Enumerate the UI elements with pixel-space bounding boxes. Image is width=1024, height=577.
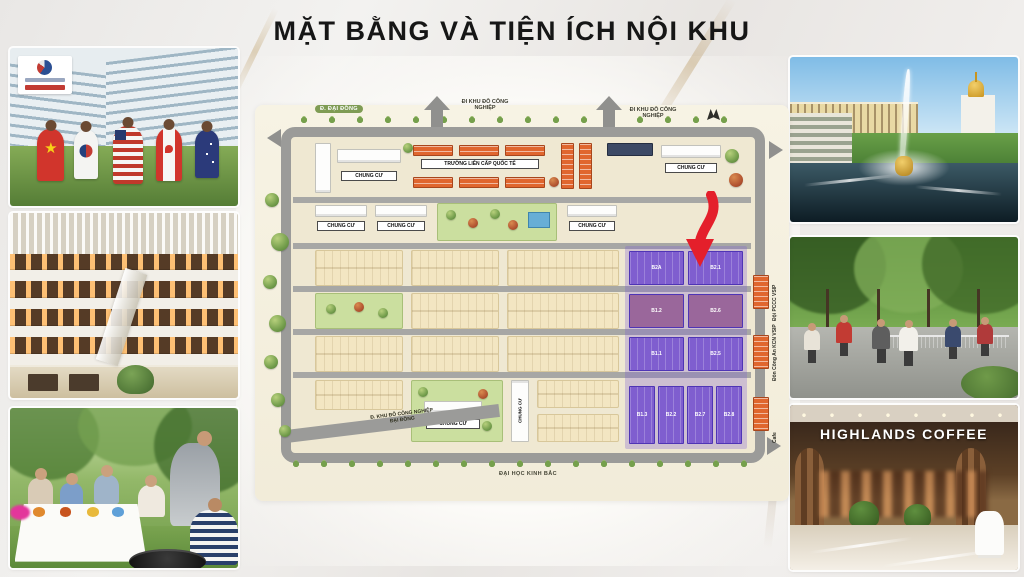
mall-ceiling — [10, 213, 238, 254]
person-torso — [899, 327, 917, 351]
mall-kiosk — [69, 374, 99, 391]
road-label-exit-right: ĐI KHU ĐÔ CÔNG NGHIỆP — [621, 107, 685, 120]
block-b1-2: B1.2 — [629, 294, 684, 328]
picnic-person — [138, 485, 165, 517]
school-tower — [561, 143, 574, 189]
shophouse-block — [411, 293, 499, 329]
gold-dome — [968, 80, 984, 97]
tree — [725, 149, 739, 163]
korea-flag-figure — [74, 130, 98, 179]
park-player — [977, 324, 993, 356]
tree-trunk — [977, 289, 980, 328]
person-legs — [877, 349, 886, 363]
swimming-pool — [528, 212, 550, 228]
school-label: TRƯỜNG LIÊN CẤP QUỐC TẾ — [421, 159, 539, 169]
master-plan-map: Đ. ĐẠI ĐỒNG ĐI KHU ĐÔ CÔNG NGHIỆP ĐI KHU… — [255, 93, 789, 507]
road-exit-arrow-up — [431, 109, 443, 129]
location-arrow-shaft — [700, 195, 714, 241]
person-torso — [945, 326, 961, 347]
apartment-label: CHUNG CƯ — [341, 171, 397, 181]
tree — [490, 209, 500, 219]
pink-flower — [10, 505, 30, 520]
park-player — [899, 327, 917, 366]
shophouse-block — [507, 336, 619, 372]
block-b2-7: B2.7 — [687, 386, 713, 444]
tree — [354, 302, 364, 312]
shophouse-block — [507, 293, 619, 329]
gold-statue — [895, 156, 913, 176]
picnic-person — [94, 475, 119, 504]
apartment-slab — [567, 205, 617, 217]
person-head — [35, 468, 47, 480]
shophouse-block — [537, 414, 619, 442]
school-tower — [579, 143, 592, 189]
fountain-cascade — [790, 113, 852, 163]
chapel-spire — [975, 72, 977, 82]
white-chair — [975, 511, 1005, 556]
apartment-label: CHUNG CƯ — [317, 221, 365, 231]
block-b2-8: B2.8 — [716, 386, 742, 444]
picnic-person — [28, 478, 53, 507]
tree — [482, 421, 492, 431]
tree — [326, 304, 336, 314]
apartment-label: CHUNG CƯ — [569, 221, 615, 231]
amenity-building — [753, 335, 769, 369]
tree — [418, 387, 428, 397]
person-head — [208, 498, 222, 512]
person-torso — [138, 485, 165, 517]
apartment-tower-vertical: CHUNG CƯ — [511, 380, 529, 442]
school-building — [459, 145, 499, 156]
university-road-label: ĐẠI HỌC KINH BẮC — [463, 471, 593, 477]
tree — [729, 173, 743, 187]
photo-international-school: ★ — [10, 48, 238, 206]
bottom-tree-row — [285, 457, 759, 471]
person-head — [981, 317, 989, 325]
road-label-dai-dong: Đ. ĐẠI ĐỒNG — [315, 105, 363, 113]
central-park — [437, 203, 557, 241]
maple-leaf — [165, 145, 173, 153]
person-legs — [981, 344, 989, 356]
mall-kiosk — [28, 374, 58, 391]
photo-family-bbq — [10, 408, 238, 568]
tree — [378, 308, 388, 318]
food-item — [60, 507, 72, 516]
cafe-ceiling — [790, 405, 1018, 422]
apartment-label: CHUNG CƯ — [377, 221, 425, 231]
person-legs — [949, 347, 957, 360]
shophouse-block — [411, 336, 499, 372]
amenity-building — [753, 275, 769, 309]
picnic-table — [15, 504, 147, 562]
tree-trunk — [826, 289, 829, 328]
amenity-label: Cafe — [772, 385, 778, 443]
apartment-dark-slab — [607, 143, 653, 156]
chapel-building — [961, 95, 995, 136]
apartment-slab — [337, 149, 401, 163]
school-logo-emblem — [37, 60, 52, 75]
apartment-tower — [315, 143, 331, 193]
road-exit-arrow-right — [769, 141, 783, 159]
tree — [549, 177, 559, 187]
person-torso — [872, 326, 890, 349]
photo-palace-fountain — [790, 57, 1018, 222]
tree — [265, 193, 279, 207]
person-legs — [808, 350, 816, 362]
person-head — [808, 323, 816, 331]
photo-highlands-coffee: HIGHLANDS COFFEE — [790, 405, 1018, 570]
food-item — [87, 507, 99, 516]
park-bush — [961, 366, 1018, 398]
apartment-slab — [315, 205, 367, 217]
taegeuk-symbol — [79, 144, 92, 157]
park-player — [836, 322, 852, 356]
park-player — [945, 326, 961, 360]
shophouse-block — [537, 380, 619, 408]
school-logo-badge — [18, 56, 72, 94]
bbq-grill — [129, 549, 207, 568]
person-head — [66, 473, 78, 485]
person-torso — [836, 322, 852, 343]
tree — [478, 389, 488, 399]
food-item — [33, 507, 45, 516]
block-b1-1: B1.1 — [629, 337, 684, 371]
photo-park-badminton — [790, 237, 1018, 398]
photo-shopping-mall — [10, 213, 238, 398]
person-head — [877, 319, 885, 327]
canada-flag-figure — [156, 128, 182, 181]
tree — [264, 355, 278, 369]
person-head — [145, 475, 157, 487]
person-head — [201, 121, 212, 132]
block-b2-5: B2.5 — [688, 337, 743, 371]
person-torso — [94, 475, 119, 504]
shophouse-block — [411, 250, 499, 286]
tree — [271, 233, 289, 251]
school-building — [459, 177, 499, 188]
person-head — [101, 465, 113, 477]
person-head — [122, 117, 133, 128]
food-item — [112, 507, 124, 516]
park-player — [804, 330, 820, 362]
park-player — [872, 326, 890, 363]
tree — [403, 143, 413, 153]
potted-plant — [849, 501, 879, 527]
australia-flag-figure — [195, 130, 219, 178]
tree — [468, 218, 478, 228]
person-head — [905, 320, 913, 328]
shophouse-block — [315, 336, 403, 372]
amenity-building — [753, 397, 769, 431]
apartment-slab — [375, 205, 427, 217]
person-head — [840, 315, 848, 323]
road-exit-arrow-left — [267, 129, 281, 147]
person-legs — [840, 343, 848, 356]
person-torso — [28, 478, 53, 507]
amenity-label: Đội PCCC VSIP — [772, 263, 778, 321]
school-logo-textline — [25, 78, 65, 82]
road-exit-arrow-up — [603, 109, 615, 129]
shophouse-block — [315, 250, 403, 286]
slide-canvas: MẶT BẰNG VÀ TIỆN ÍCH NỘI KHU ★ — [0, 0, 1024, 577]
tree — [269, 315, 286, 332]
apartment-slab — [661, 145, 721, 158]
page-title: MẶT BẰNG VÀ TIỆN ÍCH NỘI KHU — [0, 16, 1024, 47]
block-b2-2: B2.2 — [658, 386, 684, 444]
usa-flag-figure — [113, 126, 143, 184]
block-b2-6: B2.6 — [688, 294, 743, 328]
location-arrow-head — [686, 239, 714, 267]
tree — [508, 220, 518, 230]
road-label-exit-left: ĐI KHU ĐÔ CÔNG NGHIỆP — [453, 99, 517, 112]
tree — [279, 425, 291, 437]
school-building — [413, 177, 453, 188]
person-torso — [977, 324, 993, 344]
school-building — [413, 145, 453, 156]
mall-atrium-tree — [117, 365, 153, 395]
tree — [263, 275, 277, 289]
location-arrow — [673, 191, 725, 277]
flag-canton — [115, 130, 126, 140]
shophouse-block — [315, 380, 403, 410]
vietnam-flag-figure: ★ — [37, 129, 64, 181]
person-head — [45, 120, 56, 131]
tree — [271, 393, 285, 407]
person-head — [949, 319, 957, 327]
tree-trunk — [927, 289, 930, 328]
school-building — [505, 145, 545, 156]
person-head — [163, 119, 174, 130]
person-head — [80, 121, 91, 132]
amenity-label: Đồn Công An KCN VSIP — [772, 323, 778, 381]
shophouse-block — [507, 250, 619, 286]
apartment-label: CHUNG CƯ — [665, 163, 717, 173]
potted-plant — [904, 504, 931, 527]
highlands-coffee-sign: HIGHLANDS COFFEE — [790, 426, 1018, 442]
person-torso — [804, 330, 820, 350]
school-logo-redband — [25, 85, 65, 90]
block-b1-3: B1.3 — [629, 386, 655, 444]
person-legs — [904, 351, 913, 366]
school-building — [505, 177, 545, 188]
pocket-park — [315, 293, 403, 329]
tree — [446, 210, 456, 220]
